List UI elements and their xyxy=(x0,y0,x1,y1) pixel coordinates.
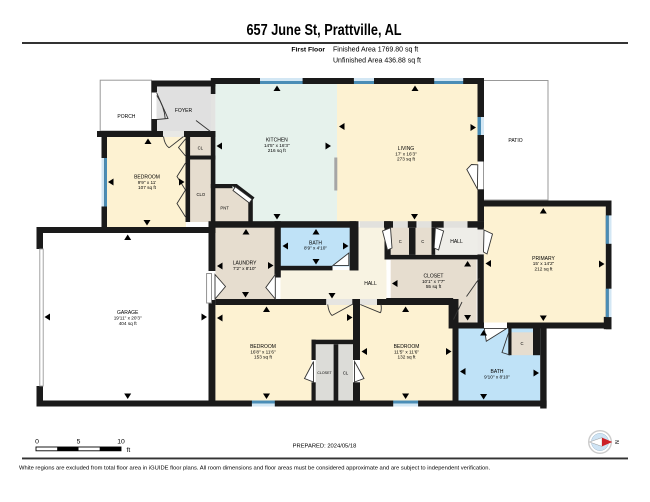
svg-text:CLO: CLO xyxy=(196,192,205,197)
svg-text:White regions are excluded fro: White regions are excluded from total fl… xyxy=(19,465,490,471)
svg-text:15' x 14'2": 15' x 14'2" xyxy=(533,261,555,266)
svg-text:First Floor: First Floor xyxy=(291,47,325,54)
svg-text:216 sq ft: 216 sq ft xyxy=(268,148,287,153)
svg-text:107 sq ft: 107 sq ft xyxy=(138,185,157,190)
svg-text:PORCH: PORCH xyxy=(117,114,135,120)
svg-text:10: 10 xyxy=(117,439,125,446)
svg-text:8'9" x 4'10": 8'9" x 4'10" xyxy=(304,246,327,251)
svg-text:PATIO: PATIO xyxy=(508,138,522,144)
svg-text:ft: ft xyxy=(127,447,131,454)
svg-text:HALL: HALL xyxy=(450,239,463,245)
svg-text:17' x 16'3": 17' x 16'3" xyxy=(395,151,417,156)
svg-text:16'8" x 11'6": 16'8" x 11'6" xyxy=(250,349,276,354)
svg-text:132 sq ft: 132 sq ft xyxy=(398,355,417,360)
svg-text:CL: CL xyxy=(343,370,349,375)
svg-text:C: C xyxy=(399,239,402,244)
svg-text:0: 0 xyxy=(35,439,39,446)
svg-text:CL: CL xyxy=(198,145,204,150)
svg-text:212 sq ft: 212 sq ft xyxy=(535,266,554,271)
svg-text:153 sq ft: 153 sq ft xyxy=(254,355,273,360)
svg-text:9'9" x 11': 9'9" x 11' xyxy=(138,180,157,185)
svg-text:10'1" x 7'7": 10'1" x 7'7" xyxy=(422,279,445,284)
svg-text:FOYER: FOYER xyxy=(175,108,193,114)
svg-text:11'5" x 11'6": 11'5" x 11'6" xyxy=(394,349,419,354)
svg-text:55 sq ft: 55 sq ft xyxy=(426,284,442,289)
svg-text:5: 5 xyxy=(77,439,81,446)
svg-text:404 sq ft: 404 sq ft xyxy=(119,321,138,326)
svg-text:Unfinished Area 436.88 sq ft: Unfinished Area 436.88 sq ft xyxy=(333,58,421,65)
svg-text:PNT: PNT xyxy=(220,205,229,210)
svg-text:N: N xyxy=(613,440,619,444)
svg-text:9'10" x 8'10": 9'10" x 8'10" xyxy=(484,374,510,379)
svg-text:PREPARED: 2024/05/18: PREPARED: 2024/05/18 xyxy=(293,443,357,449)
svg-text:657 June St, Prattville, AL: 657 June St, Prattville, AL xyxy=(246,22,401,39)
svg-text:14'5" x 16'3": 14'5" x 16'3" xyxy=(264,143,290,148)
svg-text:C: C xyxy=(421,239,424,244)
svg-text:7'2" x 8'10": 7'2" x 8'10" xyxy=(233,266,256,271)
svg-text:C: C xyxy=(520,341,523,346)
svg-text:HALL: HALL xyxy=(364,281,377,287)
svg-text:273 sq ft: 273 sq ft xyxy=(397,157,416,162)
svg-text:19'11" x 20'3": 19'11" x 20'3" xyxy=(114,316,142,321)
svg-text:Finished Area 1769.80 sq ft: Finished Area 1769.80 sq ft xyxy=(333,47,418,54)
svg-text:CLOSET: CLOSET xyxy=(317,371,332,375)
